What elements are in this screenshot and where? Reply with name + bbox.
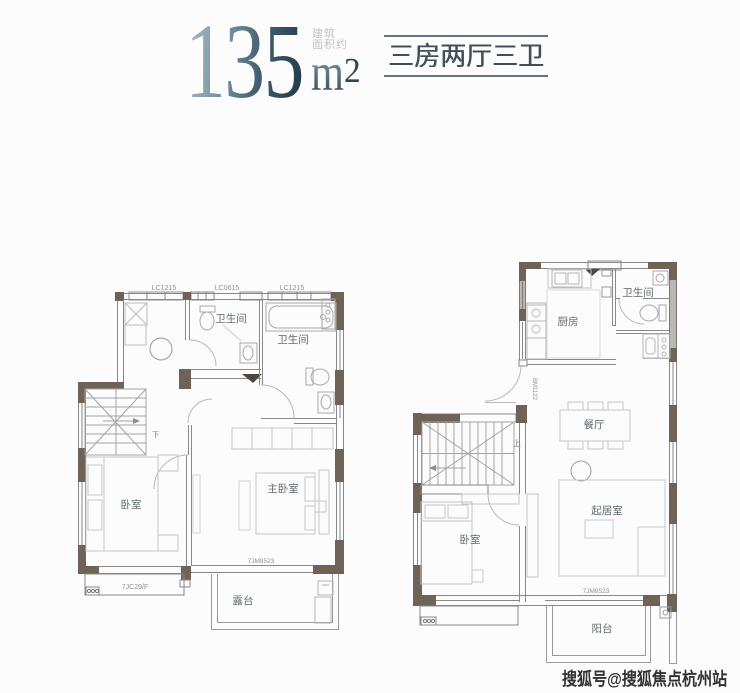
svg-text:卫生间: 卫生间 [215, 312, 247, 325]
svg-text:厨房: 厨房 [558, 315, 579, 328]
svg-text:7JC29/F: 7JC29/F [122, 584, 148, 591]
svg-text:7JM8523: 7JM8523 [248, 558, 275, 565]
svg-text:卫生间: 卫生间 [622, 286, 654, 299]
svg-text:LC1215: LC1215 [280, 285, 305, 292]
svg-text:卫生间: 卫生间 [277, 333, 309, 346]
svg-text:LC1215: LC1215 [152, 285, 177, 292]
svg-text:卧室: 卧室 [121, 498, 142, 511]
svg-text:下: 下 [152, 431, 159, 439]
svg-text:BM1122: BM1122 [531, 378, 537, 401]
svg-text:卧室: 卧室 [460, 533, 481, 546]
svg-text:露台: 露台 [233, 594, 254, 607]
svg-text:LC0615: LC0615 [215, 285, 240, 292]
svg-text:餐厅: 餐厅 [584, 418, 605, 431]
svg-text:起居室: 起居室 [591, 504, 623, 517]
svg-text:阳台: 阳台 [592, 622, 613, 635]
svg-text:7JM8523: 7JM8523 [583, 588, 610, 595]
svg-text:主卧室: 主卧室 [267, 482, 299, 495]
